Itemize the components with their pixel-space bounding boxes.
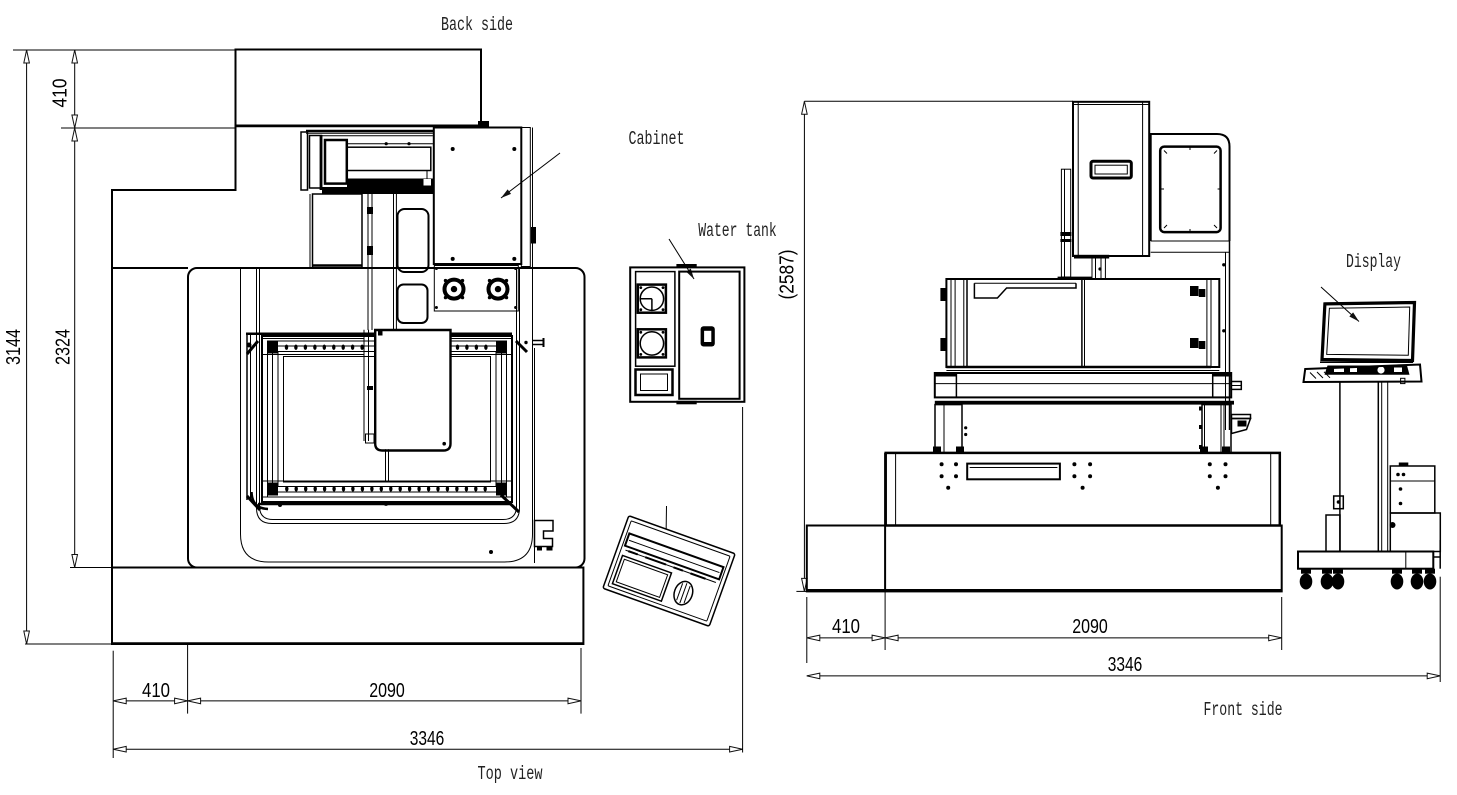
- svg-text:2090: 2090: [369, 680, 405, 702]
- svg-text:(2587): (2587): [776, 250, 798, 300]
- svg-text:410: 410: [832, 616, 860, 638]
- svg-text:410: 410: [49, 79, 71, 108]
- svg-text:410: 410: [142, 680, 170, 702]
- svg-text:3346: 3346: [410, 728, 445, 750]
- svg-text:2324: 2324: [52, 329, 74, 365]
- svg-text:Cabinet: Cabinet: [629, 128, 685, 150]
- svg-text:2090: 2090: [1072, 616, 1108, 638]
- svg-text:Display: Display: [1346, 251, 1401, 273]
- svg-text:3144: 3144: [3, 329, 25, 365]
- svg-text:Front side: Front side: [1204, 699, 1283, 721]
- svg-text:3346: 3346: [1108, 654, 1143, 676]
- svg-text:Water tank: Water tank: [698, 220, 777, 242]
- svg-text:Top view: Top view: [478, 763, 543, 785]
- svg-text:Back side: Back side: [441, 14, 513, 36]
